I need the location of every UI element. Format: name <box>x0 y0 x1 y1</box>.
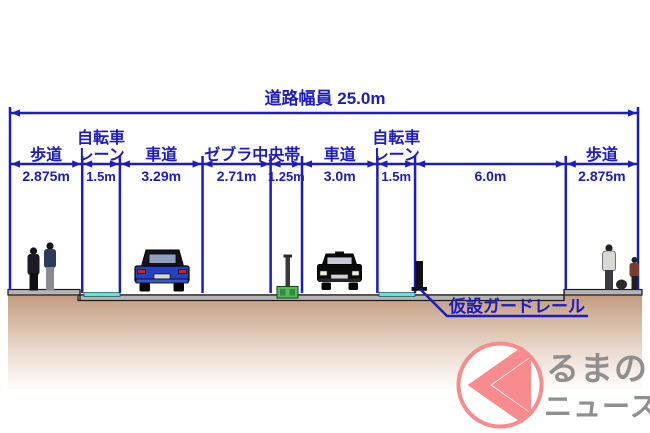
section-3-value: 2.71m <box>217 168 257 184</box>
section-8-label: 歩道 <box>586 145 618 164</box>
left-sidewalk-surface <box>8 290 80 296</box>
diagram-canvas: 歩道2.875m自転車レーン1.5m車道3.29mゼブラ中央帯2.71m1.25… <box>0 0 650 433</box>
section-8-value: 2.875m <box>578 168 625 184</box>
section-2-value: 3.29m <box>141 168 181 184</box>
section-0-value: 2.875m <box>22 168 69 184</box>
section-2-label: 車道 <box>145 145 177 164</box>
left-bicycle-lane-strip <box>84 293 120 297</box>
section-6-label-line1: 自転車 <box>372 128 420 147</box>
section-7-value: 6.0m <box>474 168 506 184</box>
section-0-label: 歩道 <box>30 145 62 164</box>
kuruma-no-news-logo: るまの ニュース <box>459 344 650 427</box>
section-1-label-line1: 自転車 <box>77 128 125 147</box>
right-sidewalk-surface <box>564 290 642 296</box>
guardrail-label: 仮設ガードレール <box>448 296 585 316</box>
section-1-value: 1.5m <box>86 169 116 184</box>
logo-text-line1: るまの <box>546 350 648 387</box>
section-4-value: 1.25m <box>268 169 305 184</box>
road-cross-section-diagram: 歩道2.875m自転車レーン1.5m車道3.29mゼブラ中央帯2.71m1.25… <box>0 0 650 433</box>
road-width-title: 道路幅員 25.0m <box>265 88 386 108</box>
section-1-label-line2: レーン <box>77 147 124 164</box>
logo-text-line2: ニュース <box>544 391 650 422</box>
section-3-label: ゼブラ中央帯 <box>204 145 300 164</box>
section-6-value: 1.5m <box>381 169 411 184</box>
section-6-label-line2: レーン <box>373 147 420 164</box>
right-bicycle-lane-strip <box>379 293 415 297</box>
section-5-label: 車道 <box>324 145 356 164</box>
section-5-value: 3.0m <box>324 168 356 184</box>
kuruma-no-news-logo-icon <box>459 344 542 427</box>
